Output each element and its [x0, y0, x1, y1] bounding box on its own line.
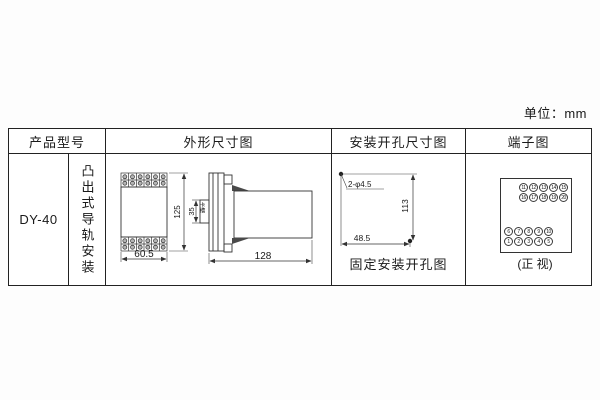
- mounting-type-cell: 凸出式导轨安装: [69, 154, 106, 285]
- spec-table: 产品型号 外形尺寸图 安装开孔尺寸图 端子图 DY-40 凸出式导轨安装: [8, 128, 592, 286]
- terminal-circle: 7: [514, 227, 523, 236]
- side-view-bottom-wedge: [232, 238, 250, 244]
- side-view-bottom-clip: [224, 244, 232, 252]
- terminal-circle: 9: [534, 227, 543, 236]
- mounting-holes-drawing: 2-φ4.5 113 48.5: [332, 154, 466, 257]
- terminal-circle: 15: [559, 183, 568, 192]
- terminal-circle: 8: [524, 227, 533, 236]
- terminal-circle: 17: [529, 193, 538, 202]
- hole-spec-label: 2-φ4.5: [348, 180, 372, 189]
- terminal-group-bottom: 67891012345: [504, 227, 553, 247]
- terminal-circle: 16: [519, 193, 528, 202]
- product-model-value: DY-40: [19, 212, 57, 227]
- horizontal-spacing-label: 48.5: [354, 233, 371, 243]
- mounting-type-label: 凸出式导轨安装: [78, 164, 97, 276]
- terminal-circle: 11: [519, 183, 528, 192]
- terminal-caption: (正 视): [500, 255, 570, 272]
- terminal-circle: 18: [539, 193, 548, 202]
- vertical-spacing-label: 113: [400, 199, 410, 213]
- terminal-circle: 5: [544, 237, 553, 246]
- terminal-box: 11121314151617181920 67891012345: [500, 178, 572, 253]
- side-view-body: [234, 191, 312, 238]
- terminal-circle: 13: [539, 183, 548, 192]
- terminal-circle: 12: [529, 183, 538, 192]
- terminal-group-top: 11121314151617181920: [519, 183, 568, 203]
- terminal-circle: 6: [504, 227, 513, 236]
- terminal-circle: 4: [534, 237, 543, 246]
- side-view-top-wedge: [232, 185, 250, 191]
- terminal-circle: 19: [549, 193, 558, 202]
- product-model-cell: DY-40: [9, 154, 69, 285]
- mounting-hole-bottom-right: [408, 239, 412, 243]
- slot-text: 卡槽: [199, 201, 206, 215]
- side-view-top-clip: [224, 175, 232, 184]
- header-product-model: 产品型号: [9, 129, 106, 154]
- mounting-holes-cell: 2-φ4.5 113 48.5 固定安装开孔图: [332, 154, 466, 285]
- outline-drawing-cell: 60.5 125 35 卡槽: [106, 154, 332, 285]
- dim-slot-label: 35: [187, 207, 196, 215]
- dim-height-label: 125: [173, 205, 182, 219]
- front-view-body: [121, 187, 167, 237]
- terminal-circle: 14: [549, 183, 558, 192]
- page: 单位：mm 产品型号 外形尺寸图 安装开孔尺寸图 端子图 DY-40 凸出式导轨…: [0, 0, 600, 400]
- outline-drawing: 60.5 125 35 卡槽: [106, 154, 332, 285]
- terminal-circle: 3: [524, 237, 533, 246]
- front-view-top-terminal-block: [121, 173, 167, 187]
- dim-depth-label: 128: [255, 251, 272, 262]
- terminal-circle: 10: [544, 227, 553, 236]
- side-view-flange: [209, 173, 224, 251]
- dim-width-label: 60.5: [134, 249, 154, 260]
- header-mounting-holes: 安装开孔尺寸图: [332, 129, 466, 154]
- mounting-holes-caption: 固定安装开孔图: [332, 254, 465, 273]
- terminal-circle: 20: [559, 193, 568, 202]
- header-outline: 外形尺寸图: [106, 129, 332, 154]
- terminal-circle: 2: [514, 237, 523, 246]
- terminal-diagram-cell: 11121314151617181920 67891012345 (正 视): [466, 154, 591, 285]
- terminal-circle: 1: [504, 237, 513, 246]
- header-terminals: 端子图: [466, 129, 591, 154]
- unit-label: 单位：mm: [524, 103, 587, 122]
